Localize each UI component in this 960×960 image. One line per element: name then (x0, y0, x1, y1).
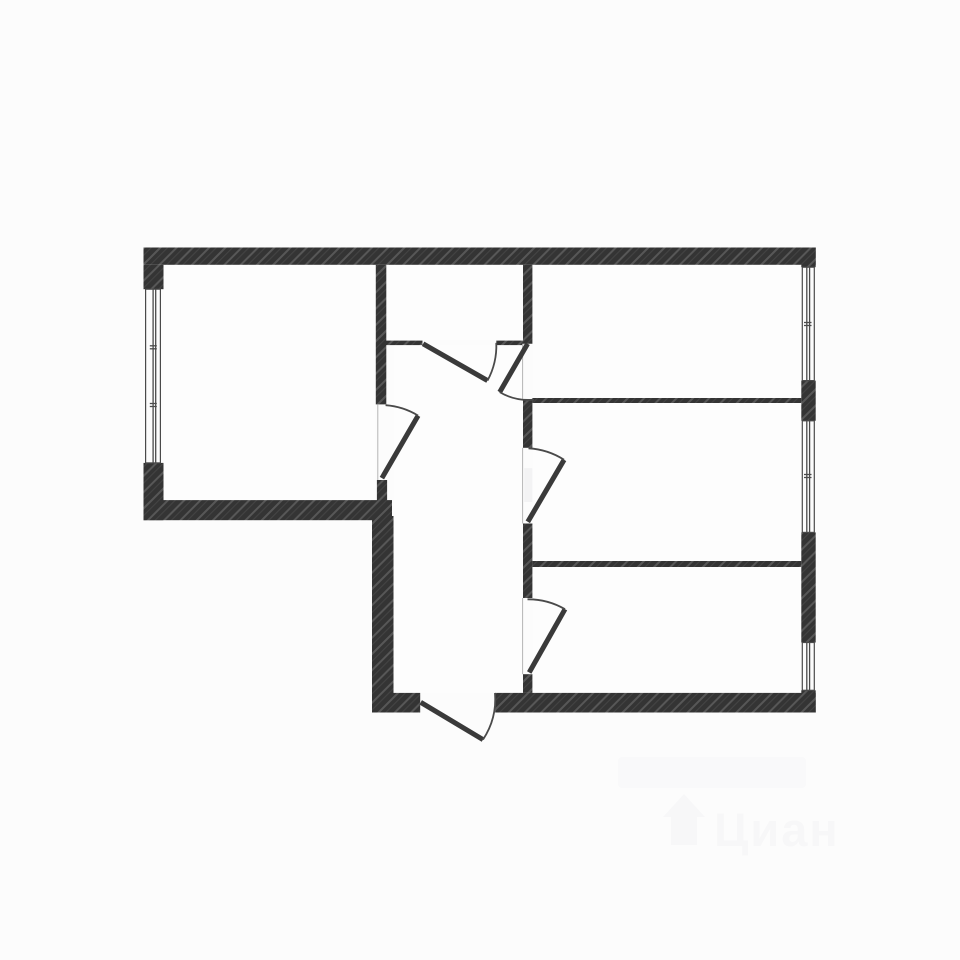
svg-text:Циан: Циан (714, 803, 840, 856)
